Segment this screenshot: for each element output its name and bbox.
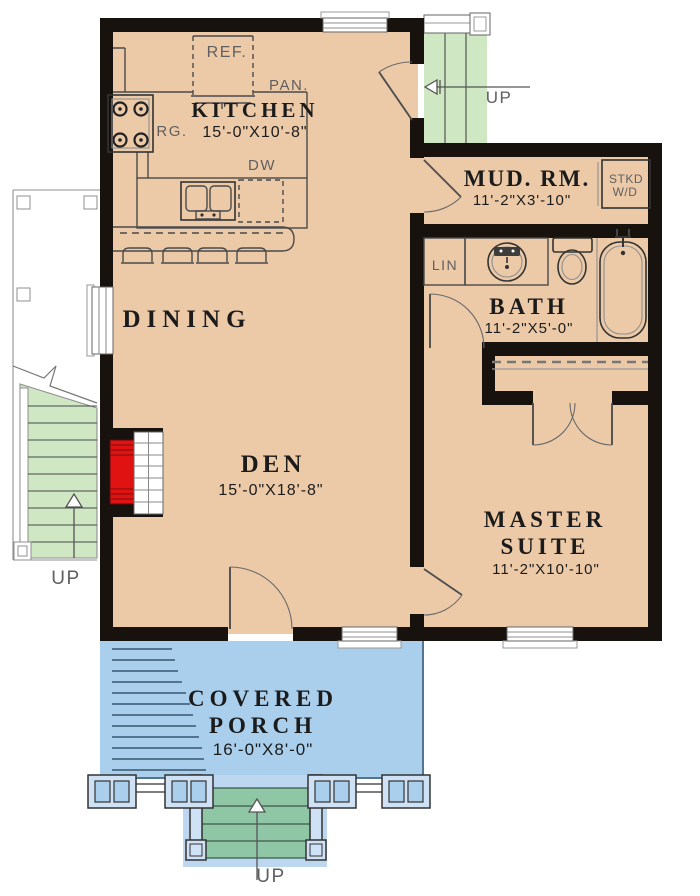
- side-stairs: [20, 384, 97, 558]
- wall-bottom-1: [100, 627, 228, 641]
- side-stairs-up-label: UP: [51, 568, 80, 589]
- wall-bottom-2: [293, 627, 342, 641]
- dining-label: DINING: [122, 306, 251, 333]
- wall-kitchen-right-upper: [410, 18, 424, 64]
- wall-right: [648, 143, 662, 641]
- step-newel-left: [186, 840, 206, 860]
- dining-window: [87, 285, 113, 356]
- linen-label: LIN: [432, 257, 458, 273]
- upper-stairs: [424, 13, 530, 143]
- covered-porch-label-2: PORCH: [209, 713, 317, 738]
- den-dims: 15'-0"X18'-8": [218, 482, 323, 499]
- master-suite-dims: 11'-2"X10'-10": [492, 561, 600, 578]
- covered-porch: [88, 641, 430, 880]
- wall-bottom-4: [573, 627, 662, 641]
- refrigerator-label: REF.: [207, 44, 248, 61]
- washer-dryer-label-2: W/D: [613, 185, 638, 199]
- wall-center: [410, 213, 424, 567]
- kitchen-window: [321, 12, 389, 32]
- master-suite-label-1: MASTER: [484, 507, 606, 532]
- wall-closet-right: [612, 391, 648, 405]
- kitchen-dims: 15'-0"X10'-8": [202, 124, 307, 141]
- covered-porch-label-1: COVERED: [188, 686, 338, 711]
- upper-stair-newel: [470, 13, 490, 35]
- master-suite-label-2: SUITE: [500, 534, 589, 559]
- wall-bottom-3: [397, 627, 507, 641]
- side-deck-and-stairs: [13, 190, 100, 560]
- deck-post: [17, 288, 30, 301]
- pantry-label: PAN.: [269, 77, 309, 94]
- stair-railing: [20, 388, 28, 558]
- deck-post: [84, 196, 97, 209]
- porch-steps-up-label: UP: [256, 866, 285, 887]
- deck-post: [17, 196, 30, 209]
- wall-closet-left: [482, 391, 533, 405]
- den-label: DEN: [241, 451, 306, 478]
- step-newel-right: [306, 840, 326, 860]
- mud-room-label: MUD. RM.: [464, 166, 591, 191]
- porch-steps: [202, 788, 310, 858]
- floor-plan: KITCHEN 15'-0"X10'-8" REF. PAN. RG. DW D…: [0, 0, 700, 896]
- washer-dryer-label-1: STKD: [609, 172, 643, 186]
- floor-plan-drawing: KITCHEN 15'-0"X10'-8" REF. PAN. RG. DW D…: [0, 0, 700, 896]
- den-window: [338, 627, 401, 648]
- range-label: RG.: [156, 123, 187, 140]
- bath-dims: 11'-2"X5'-0": [485, 320, 574, 337]
- mud-room-dims: 11'-2"X3'-10": [473, 192, 571, 209]
- bath-label: BATH: [489, 294, 568, 319]
- wall-left-upper: [100, 18, 113, 289]
- wall-bath-south: [482, 342, 648, 356]
- upper-stairs-up-label: UP: [486, 88, 513, 107]
- wall-mudroom-top: [410, 143, 662, 157]
- dishwasher-label: DW: [248, 157, 276, 174]
- wall-mud-bath: [424, 224, 648, 238]
- master-window: [503, 627, 577, 648]
- stair-newel: [14, 542, 31, 560]
- kitchen-label: KITCHEN: [191, 98, 318, 122]
- fireplace: [100, 428, 163, 517]
- upper-stair-railing: [424, 15, 472, 33]
- covered-porch-dims: 16'-0"X8'-0": [213, 740, 314, 759]
